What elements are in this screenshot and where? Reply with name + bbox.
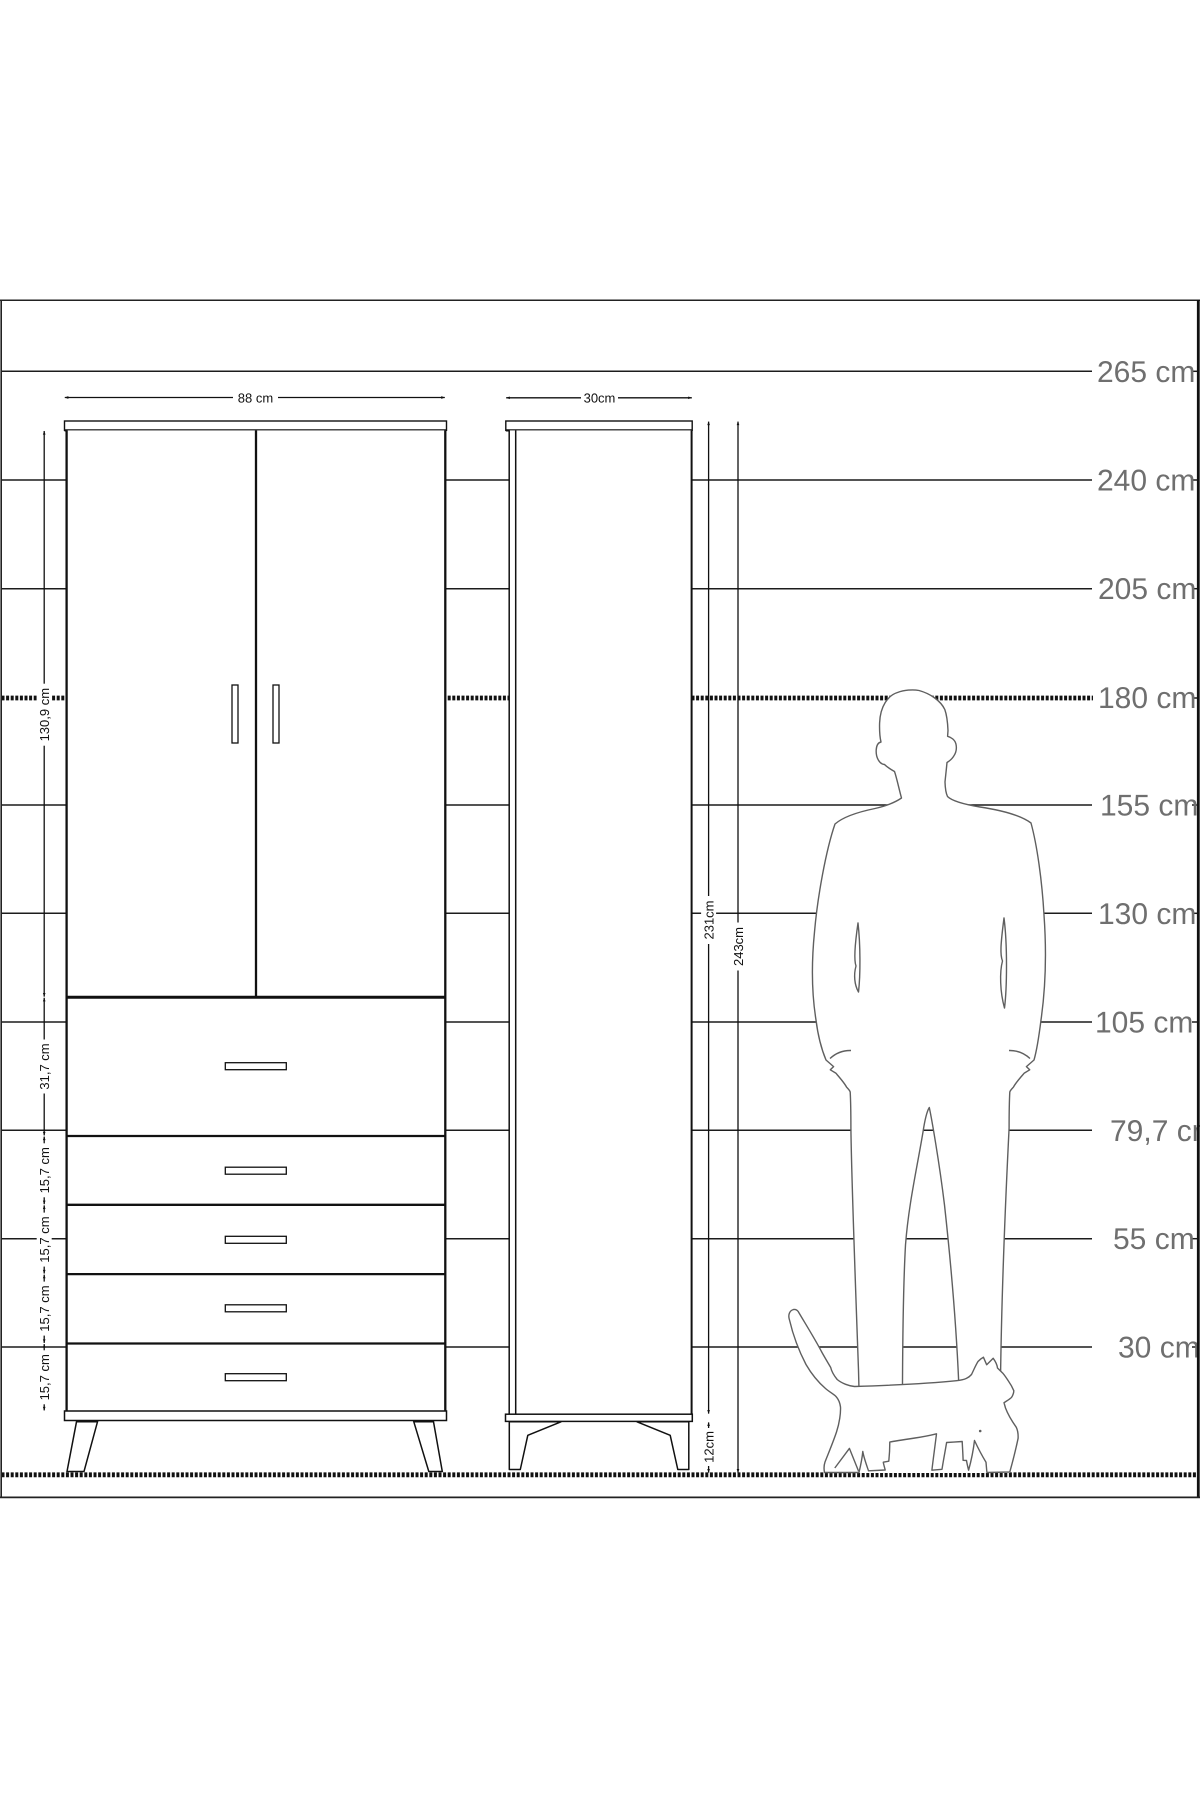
svg-text:180 cm: 180 cm	[1098, 682, 1196, 715]
svg-text:130,9 cm: 130,9 cm	[37, 688, 52, 741]
svg-text:243cm: 243cm	[731, 927, 746, 966]
svg-text:155 cm: 155 cm	[1100, 790, 1198, 823]
svg-text:15,7 cm: 15,7 cm	[37, 1285, 52, 1331]
svg-text:15,7 cm: 15,7 cm	[37, 1216, 52, 1262]
svg-text:30cm: 30cm	[584, 391, 616, 406]
svg-text:30 cm: 30 cm	[1118, 1332, 1200, 1365]
svg-text:265 cm: 265 cm	[1097, 356, 1195, 389]
svg-text:79,7 cm: 79,7 cm	[1110, 1115, 1200, 1148]
svg-text:12cm: 12cm	[701, 1431, 716, 1463]
svg-text:240 cm: 240 cm	[1097, 465, 1195, 498]
svg-text:55 cm: 55 cm	[1113, 1223, 1195, 1256]
svg-text:130 cm: 130 cm	[1098, 898, 1196, 931]
svg-text:15,7 cm: 15,7 cm	[37, 1147, 52, 1193]
svg-text:88 cm: 88 cm	[238, 390, 273, 405]
svg-text:15,7 cm: 15,7 cm	[37, 1354, 52, 1400]
svg-text:231cm: 231cm	[701, 900, 716, 939]
svg-text:205 cm: 205 cm	[1098, 573, 1196, 606]
svg-text:105 cm: 105 cm	[1095, 1007, 1193, 1040]
svg-text:31,7 cm: 31,7 cm	[37, 1043, 52, 1089]
